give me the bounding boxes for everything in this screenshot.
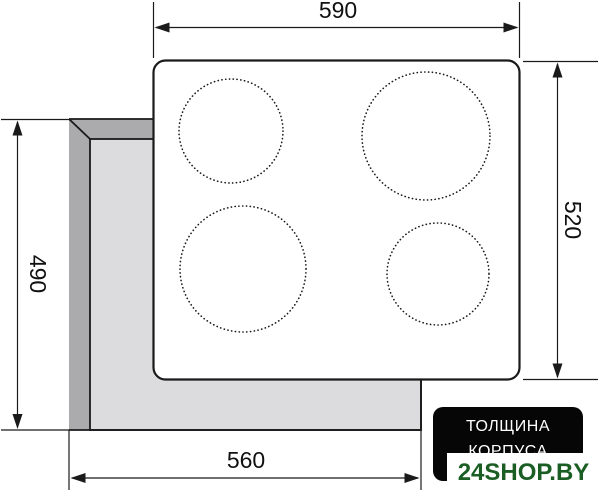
arrowhead-right-icon: [504, 23, 519, 33]
dimension-bottom-width: 560: [69, 430, 421, 490]
technical-drawing-canvas: 590 520 490 560 ТОЛЩИНА КОРПУСА 24: [0, 0, 600, 493]
dimension-left-height: 490: [1, 120, 69, 431]
arrowhead-up-icon: [553, 63, 563, 78]
dimension-right-height: 520: [523, 62, 598, 380]
dimension-right-value: 520: [560, 201, 586, 239]
thickness-badge-line1: ТОЛЩИНА: [433, 414, 583, 439]
arrowhead-left-icon: [155, 23, 170, 33]
arrowhead-down-icon: [13, 414, 23, 429]
arrowhead-right-icon: [405, 473, 420, 483]
dimension-top-width: 590: [154, 0, 520, 58]
arrowhead-up-icon: [13, 121, 23, 136]
cooktop-panel: [154, 61, 520, 380]
watermark-text: 24SHOP.BY: [458, 459, 590, 487]
arrowhead-down-icon: [553, 364, 563, 379]
dimension-top-value: 590: [319, 0, 357, 23]
watermark-box: 24SHOP.BY: [447, 453, 600, 493]
dimension-bottom-value: 560: [227, 447, 265, 473]
arrowhead-left-icon: [71, 473, 86, 483]
dimension-left-value: 490: [25, 255, 51, 293]
